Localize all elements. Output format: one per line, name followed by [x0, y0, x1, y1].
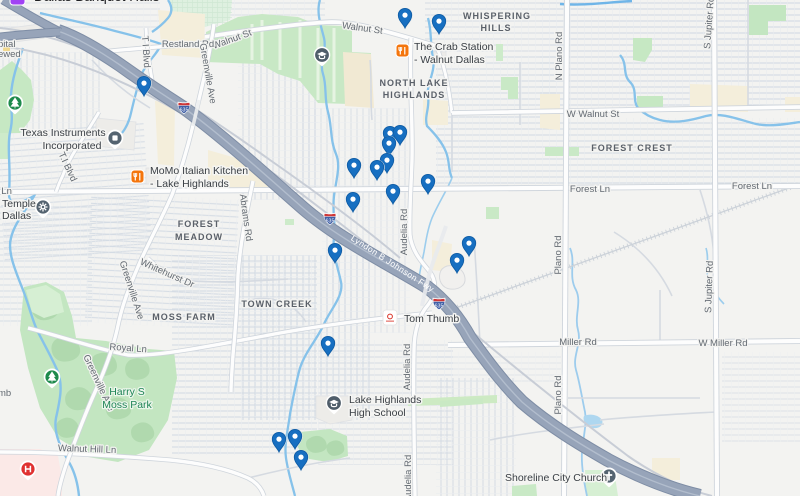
- svg-text:FOREST CREST: FOREST CREST: [591, 143, 673, 153]
- svg-text:est Ln: est Ln: [0, 186, 12, 197]
- svg-text:Dallas: Dallas: [2, 210, 31, 222]
- svg-text:HIGHLANDS: HIGHLANDS: [383, 90, 446, 100]
- svg-text:W Walnut St: W Walnut St: [567, 109, 620, 120]
- svg-text:Forest Ln: Forest Ln: [732, 181, 772, 192]
- svg-text:Harry S: Harry S: [109, 386, 145, 398]
- svg-text:Shoreline City Church: Shoreline City Church: [505, 472, 607, 484]
- svg-text:Incorporated: Incorporated: [43, 140, 102, 152]
- svg-text:Plano Rd: Plano Rd: [553, 235, 564, 274]
- svg-text:HILLS: HILLS: [481, 23, 512, 33]
- svg-text:FOREST: FOREST: [178, 219, 221, 229]
- svg-text:Walnut Hill Ln: Walnut Hill Ln: [58, 443, 117, 456]
- svg-text:Audelia Rd: Audelia Rd: [402, 344, 413, 390]
- svg-text:Tom Thumb: Tom Thumb: [404, 313, 459, 325]
- svg-text:Lake Highlands: Lake Highlands: [349, 394, 421, 406]
- svg-text:- Walnut Dallas: - Walnut Dallas: [414, 54, 485, 66]
- svg-text:Audelia Rd: Audelia Rd: [399, 209, 410, 255]
- svg-text:T I Blvd: T I Blvd: [139, 35, 152, 68]
- svg-text:W Miller Rd: W Miller Rd: [698, 338, 747, 349]
- svg-text:Miller Rd: Miller Rd: [559, 337, 596, 348]
- svg-text:Forest Ln: Forest Ln: [570, 184, 610, 195]
- svg-text:mb: mb: [0, 388, 11, 399]
- svg-text:- Lake Highlands: - Lake Highlands: [150, 178, 229, 190]
- svg-text:NORTH LAKE: NORTH LAKE: [380, 78, 449, 88]
- svg-text:Moss Park: Moss Park: [102, 399, 152, 411]
- svg-text:Dallas Banquet Halls: Dallas Banquet Halls: [34, 0, 160, 4]
- svg-text:ewed: ewed: [0, 49, 21, 60]
- svg-text:Audelia Rd: Audelia Rd: [403, 455, 414, 496]
- svg-text:MEADOW: MEADOW: [175, 232, 223, 242]
- svg-text:WHISPERING: WHISPERING: [463, 11, 531, 21]
- svg-text:The Crab Station: The Crab Station: [414, 41, 494, 53]
- svg-text:MoMo Italian Kitchen: MoMo Italian Kitchen: [150, 165, 248, 177]
- svg-text:Temple: Temple: [2, 198, 36, 210]
- svg-text:N Plano Rd: N Plano Rd: [554, 32, 565, 81]
- svg-text:TOWN CREEK: TOWN CREEK: [241, 299, 312, 309]
- svg-text:High School: High School: [349, 407, 406, 419]
- svg-text:MOSS FARM: MOSS FARM: [152, 312, 216, 322]
- svg-text:S Jupiter Rd: S Jupiter Rd: [703, 261, 716, 314]
- svg-text:Texas Instruments: Texas Instruments: [20, 127, 105, 139]
- svg-text:Plano Rd: Plano Rd: [553, 375, 564, 414]
